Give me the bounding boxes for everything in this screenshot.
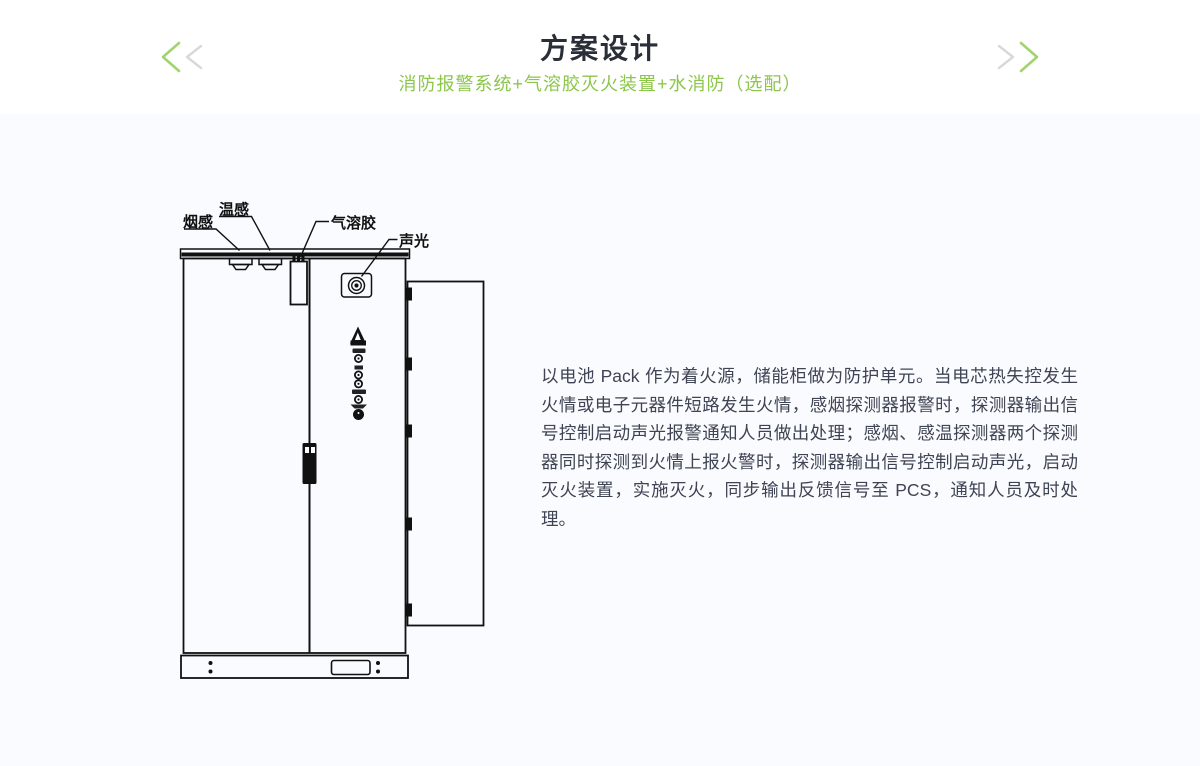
label-sound-light: 声光: [398, 232, 429, 250]
double-chevron-left-icon: [160, 62, 208, 77]
door-handle: [303, 443, 317, 484]
next-slide-button[interactable]: [992, 40, 1040, 74]
aerosol-device: [291, 257, 308, 305]
double-chevron-right-icon: [992, 62, 1040, 77]
open-door-panel: [408, 282, 484, 626]
cabinet-base: [181, 656, 408, 679]
page: 方案设计 消防报警系统+气溶胶灭火装置+水消防（选配）: [0, 0, 1200, 766]
label-smoke-sensor: 烟感: [183, 213, 213, 231]
scheme-description: 以电池 Pack 作为着火源，储能柜做为防护单元。当电芯热失控发生火情或电子元器…: [541, 362, 1078, 534]
prev-slide-button[interactable]: [160, 40, 208, 74]
label-aerosol: 气溶胶: [330, 214, 376, 232]
label-temperature-sensor: 温感: [219, 201, 249, 219]
storage-cabinet-diagram: 烟感 温感 气溶胶 声光: [165, 195, 495, 690]
